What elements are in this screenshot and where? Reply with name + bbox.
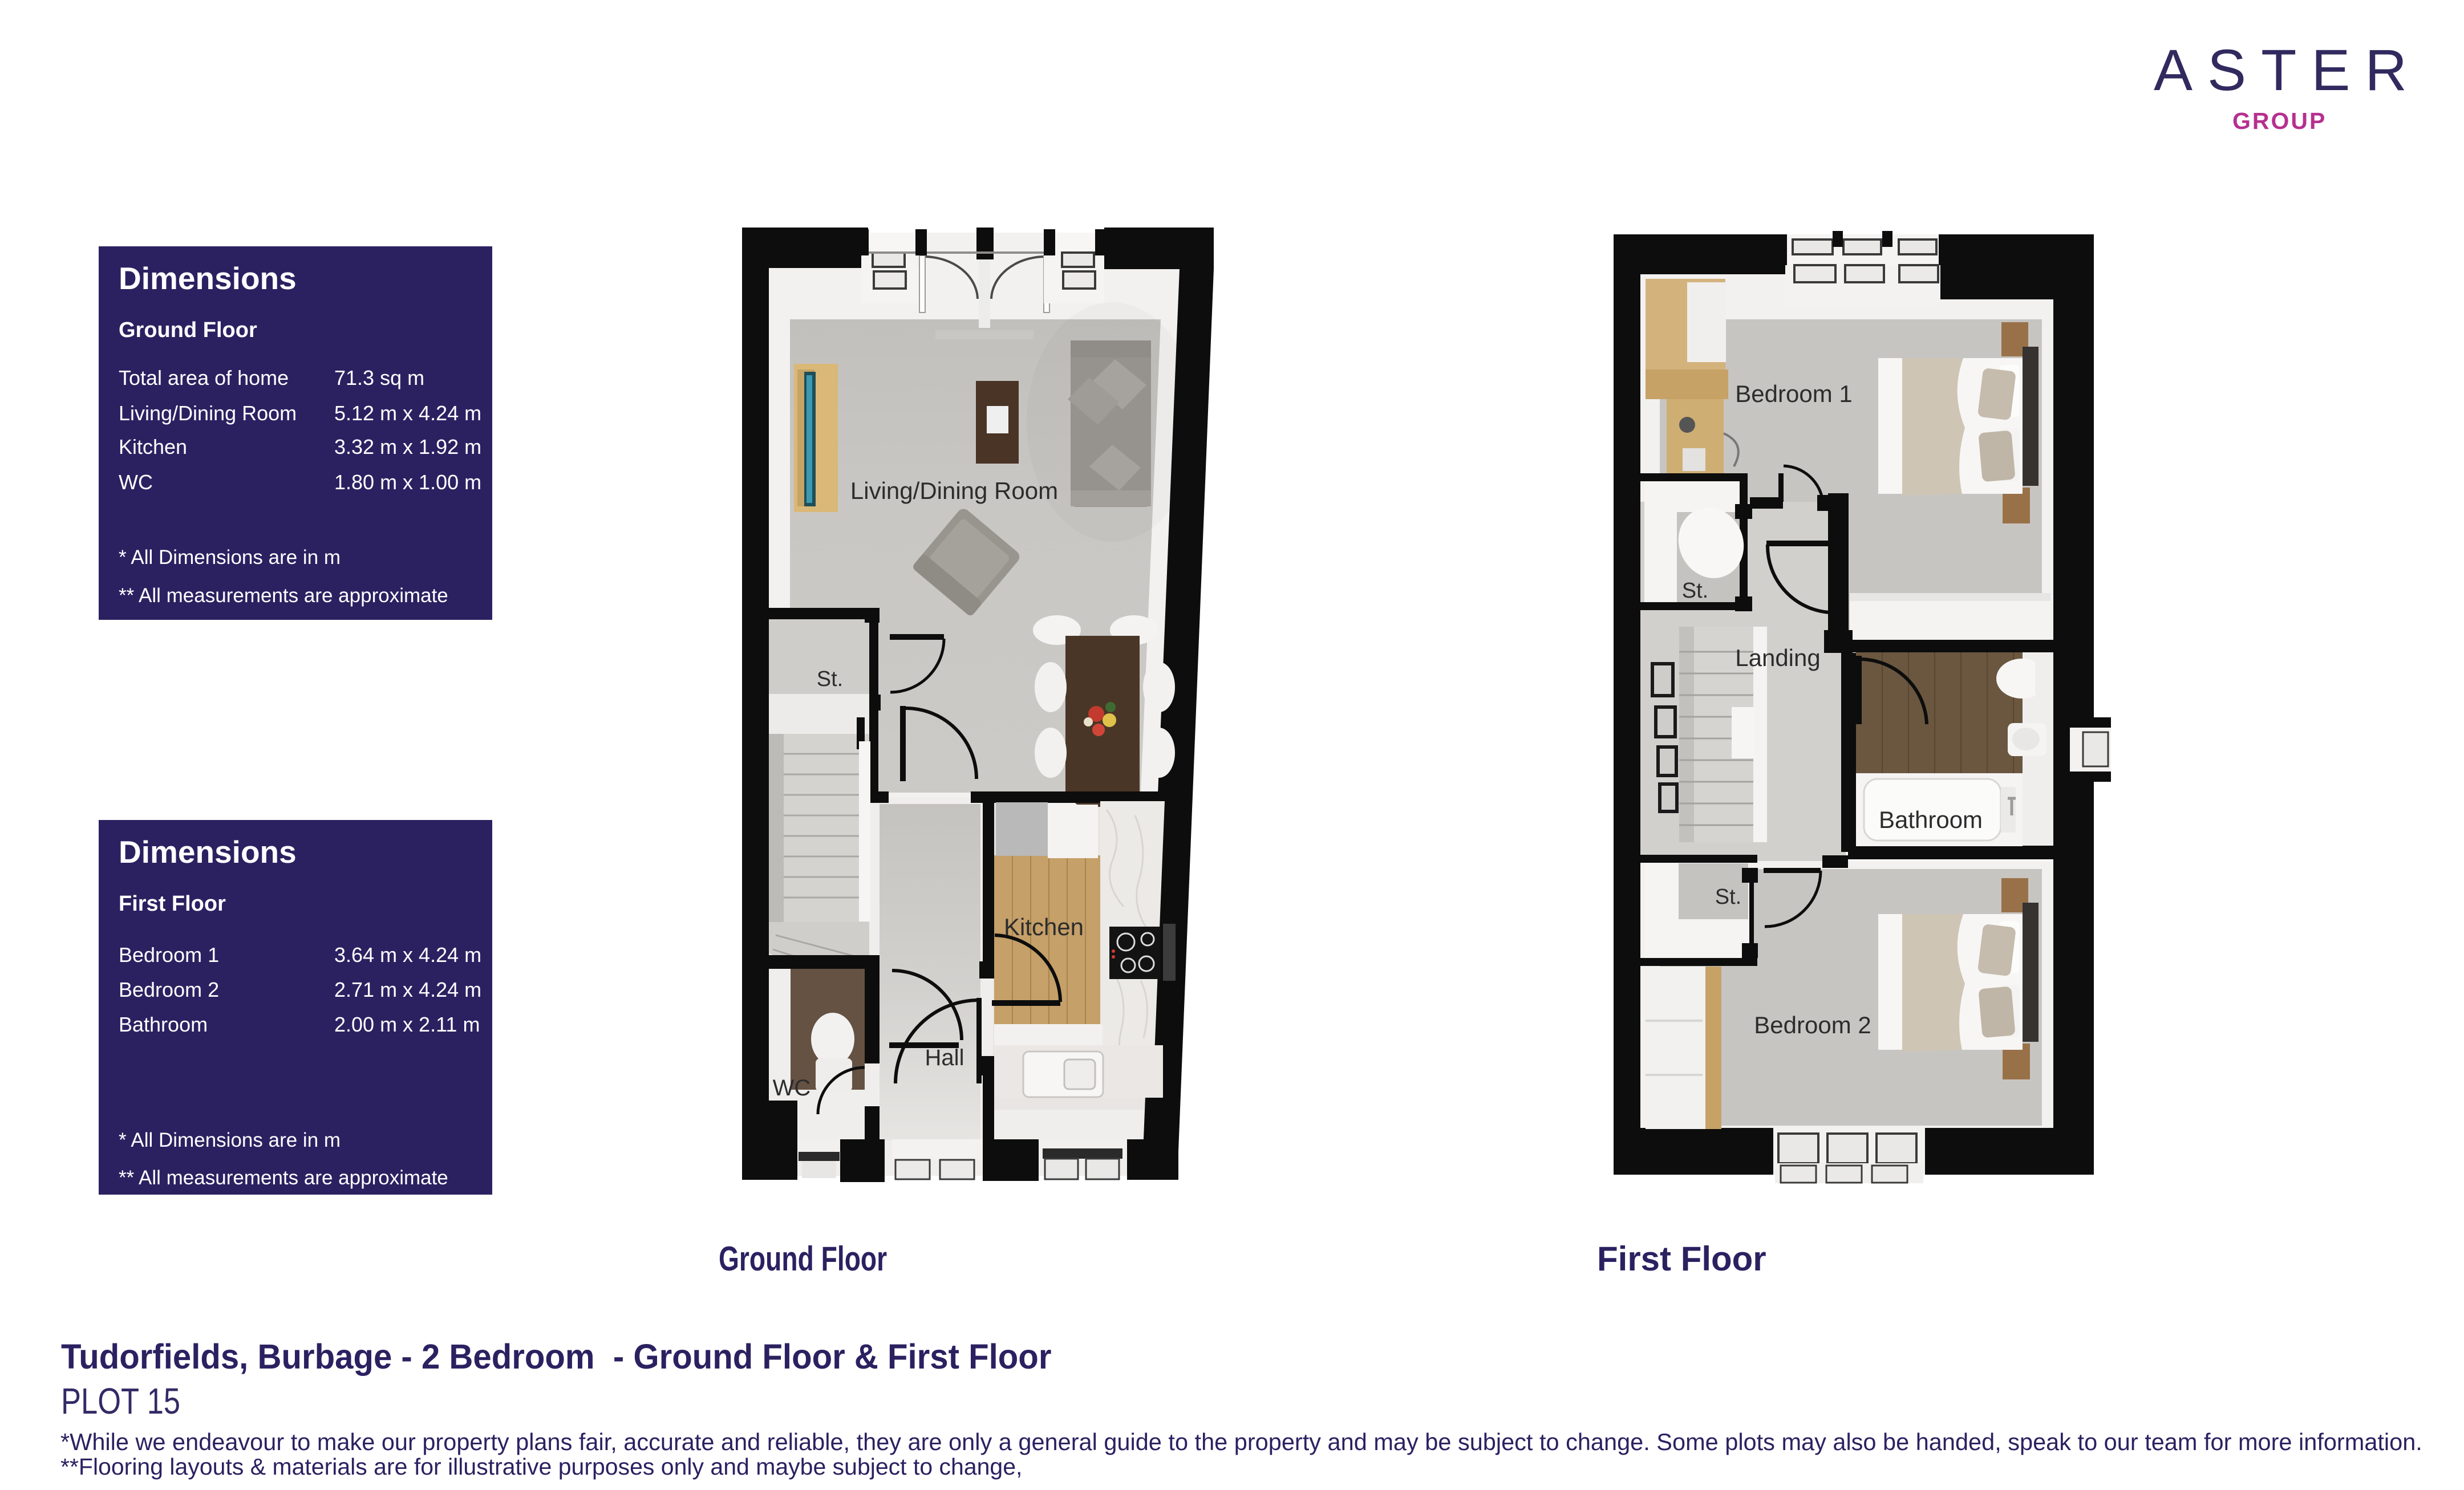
svg-text:St.: St. bbox=[817, 667, 843, 691]
svg-text:St.: St. bbox=[1715, 885, 1741, 909]
svg-text:St.: St. bbox=[1682, 579, 1708, 603]
svg-text:WC: WC bbox=[773, 1075, 811, 1101]
svg-text:Hall: Hall bbox=[925, 1045, 964, 1070]
svg-text:Kitchen: Kitchen bbox=[1004, 914, 1084, 940]
svg-text:Bathroom: Bathroom bbox=[1879, 806, 1983, 833]
svg-text:Landing: Landing bbox=[1735, 644, 1820, 671]
svg-text:Living/Dining Room: Living/Dining Room bbox=[850, 477, 1058, 504]
svg-text:Bedroom 1: Bedroom 1 bbox=[1735, 380, 1852, 407]
svg-text:Bedroom 2: Bedroom 2 bbox=[1754, 1012, 1871, 1038]
